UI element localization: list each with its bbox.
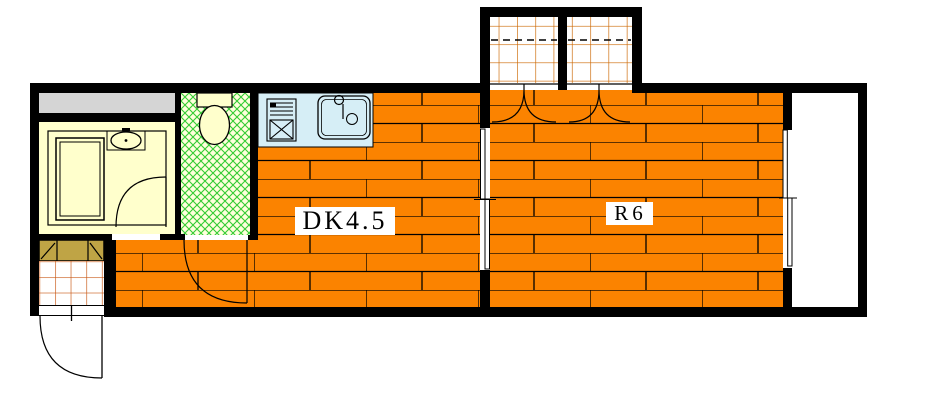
entrance-door bbox=[40, 316, 102, 378]
genkan-floor bbox=[39, 261, 104, 305]
toilet bbox=[197, 93, 232, 145]
closet-left bbox=[490, 17, 558, 84]
kitchen-counter bbox=[258, 93, 373, 147]
hallway-floor bbox=[116, 240, 258, 307]
bathroom bbox=[39, 122, 175, 234]
floor-plan: DK4.5 R6 bbox=[0, 0, 925, 401]
shelf-strip bbox=[39, 93, 175, 113]
closet-top-wall bbox=[480, 7, 642, 17]
floor-r6 bbox=[490, 90, 783, 307]
closet-right bbox=[567, 17, 632, 84]
threshold bbox=[39, 306, 104, 322]
room-label-dk: DK4.5 bbox=[295, 207, 395, 235]
entrance bbox=[39, 240, 104, 378]
shoe-cabinet bbox=[39, 240, 104, 261]
balcony bbox=[792, 93, 858, 307]
room-label-r6: R6 bbox=[606, 202, 653, 225]
